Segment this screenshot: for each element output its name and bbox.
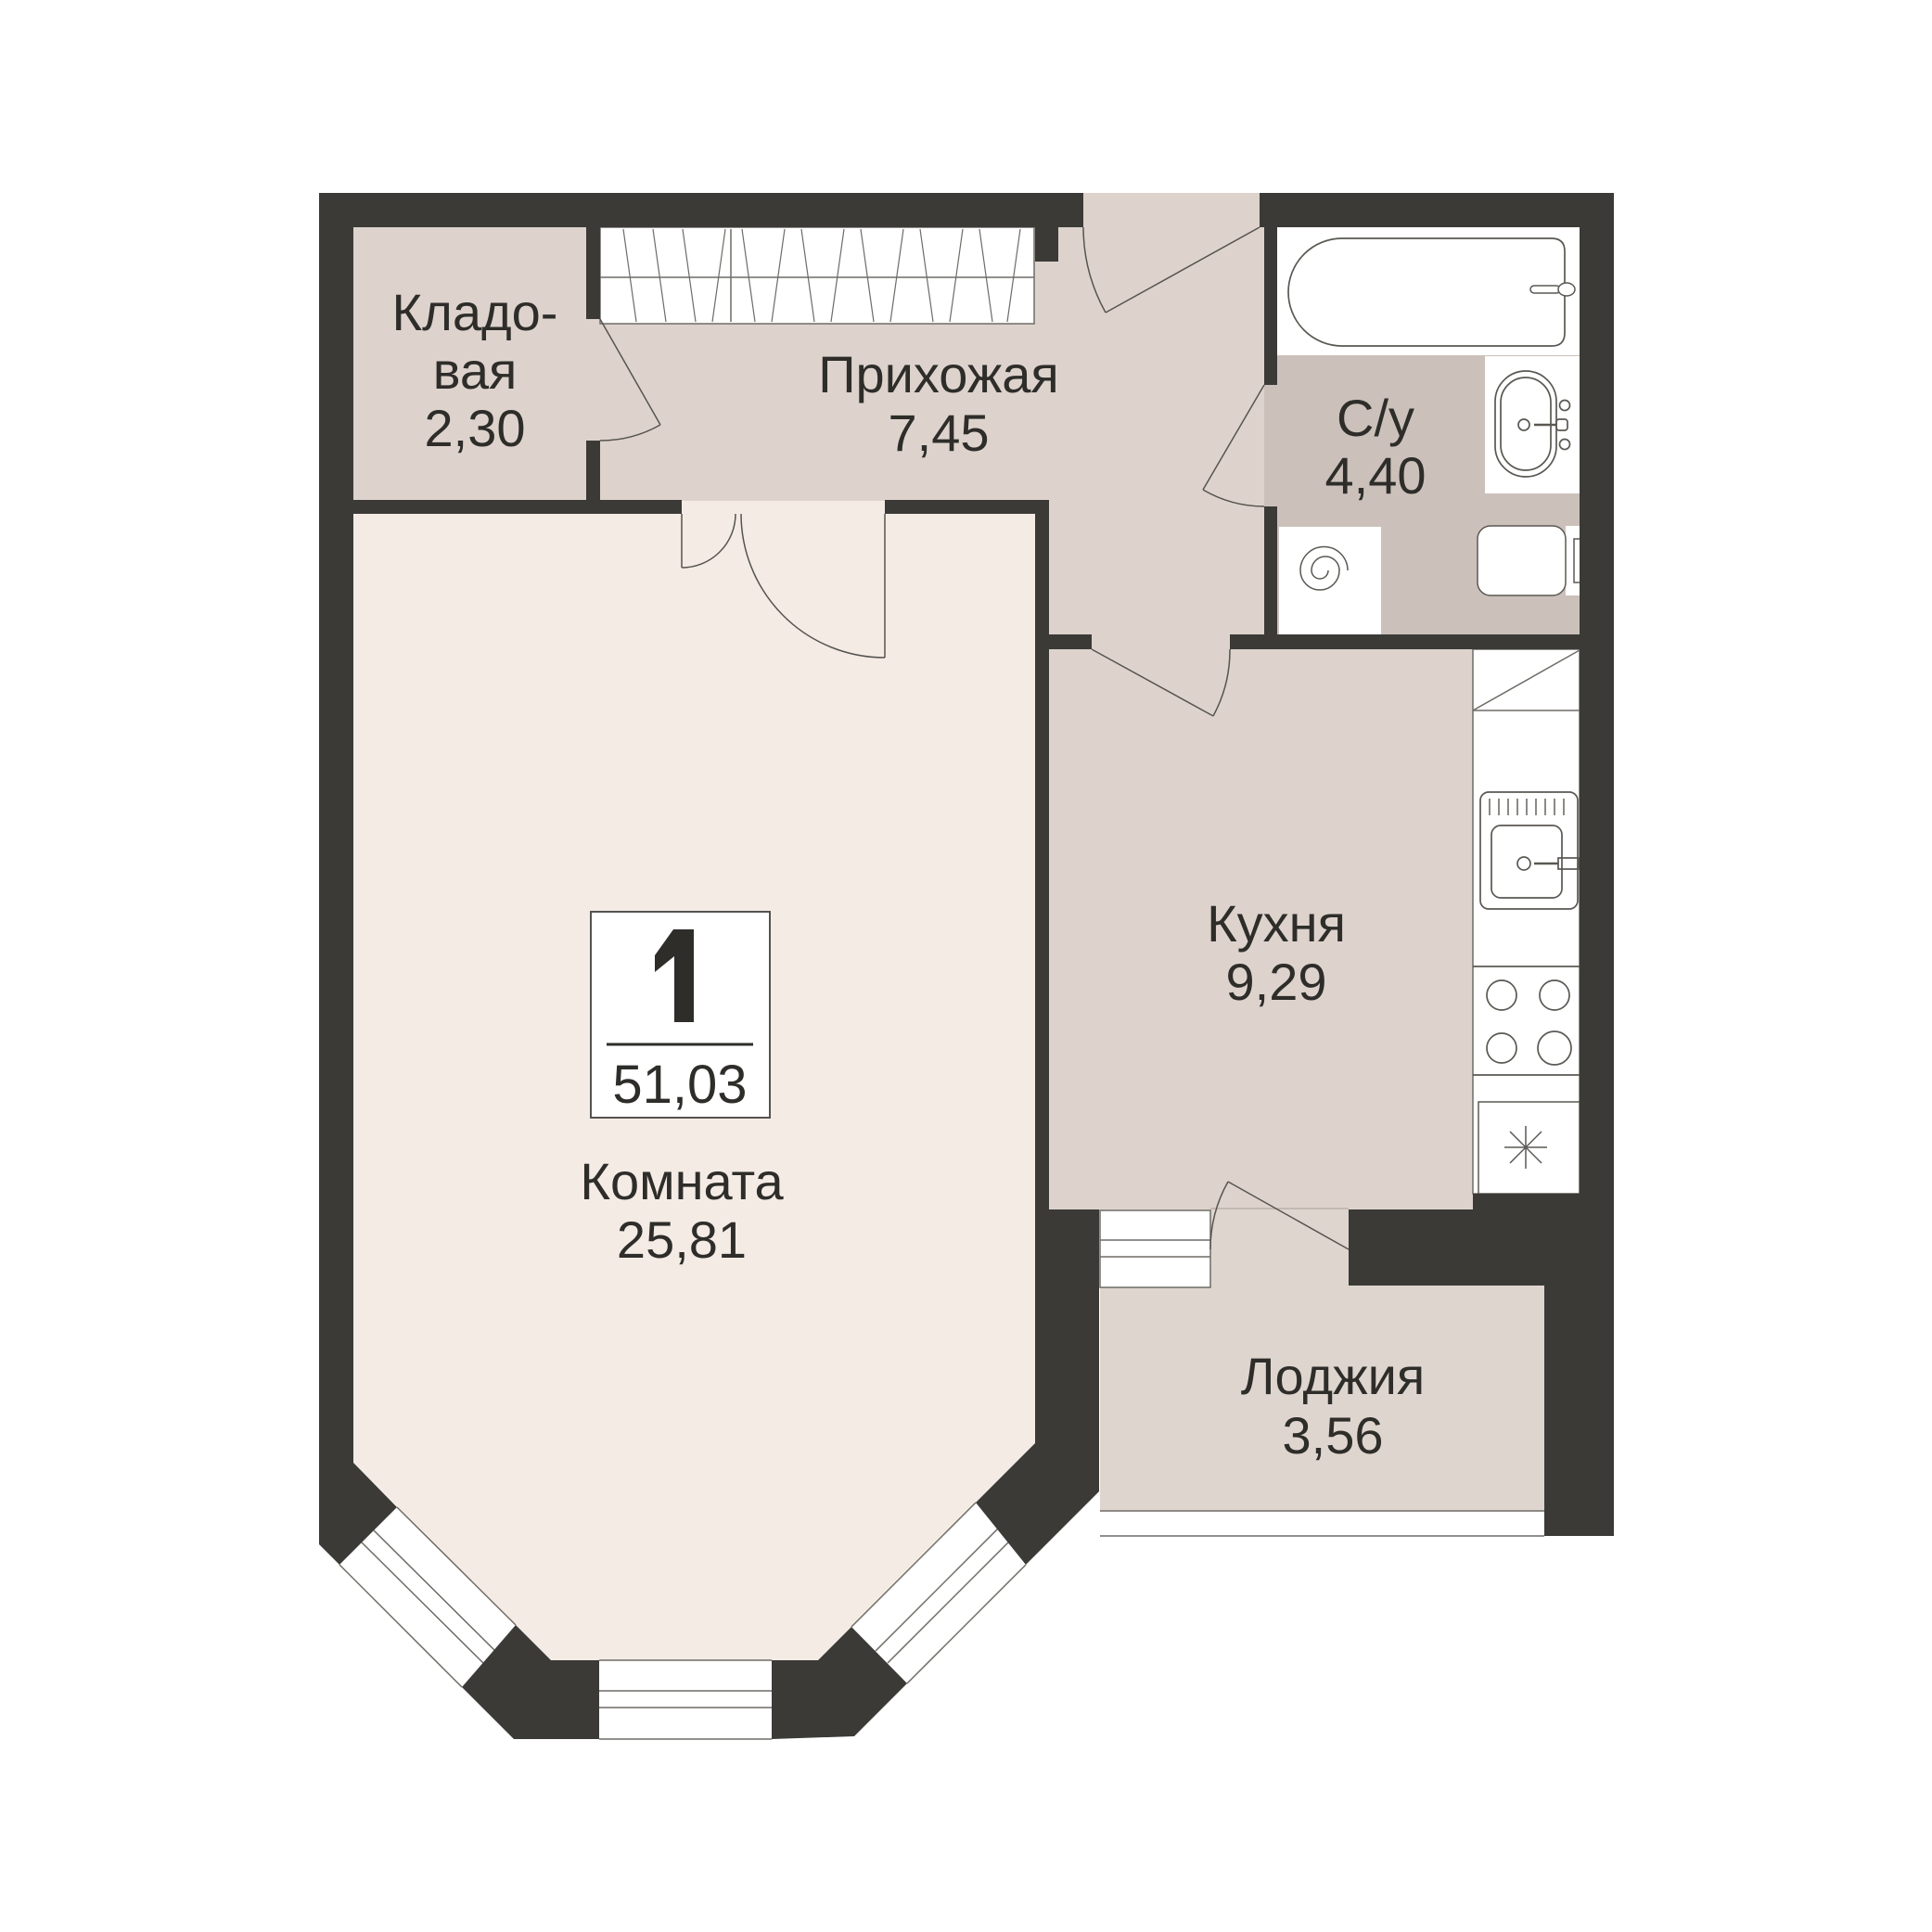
svg-text:вая: вая <box>433 341 518 400</box>
svg-text:9,29: 9,29 <box>1226 953 1327 1011</box>
svg-text:3,56: 3,56 <box>1283 1406 1384 1465</box>
svg-text:4,40: 4,40 <box>1325 446 1427 505</box>
svg-text:Кухня: Кухня <box>1207 894 1346 953</box>
svg-text:С/у: С/у <box>1337 389 1414 447</box>
svg-text:Лоджия: Лоджия <box>1241 1347 1425 1405</box>
svg-text:51,03: 51,03 <box>612 1055 747 1115</box>
svg-text:Комната: Комната <box>580 1152 784 1210</box>
svg-text:7,45: 7,45 <box>889 403 990 462</box>
svg-text:2,30: 2,30 <box>425 399 526 457</box>
svg-text:25,81: 25,81 <box>617 1210 747 1269</box>
svg-text:Кладо-: Кладо- <box>392 283 558 341</box>
svg-text:Прихожая: Прихожая <box>818 345 1059 403</box>
